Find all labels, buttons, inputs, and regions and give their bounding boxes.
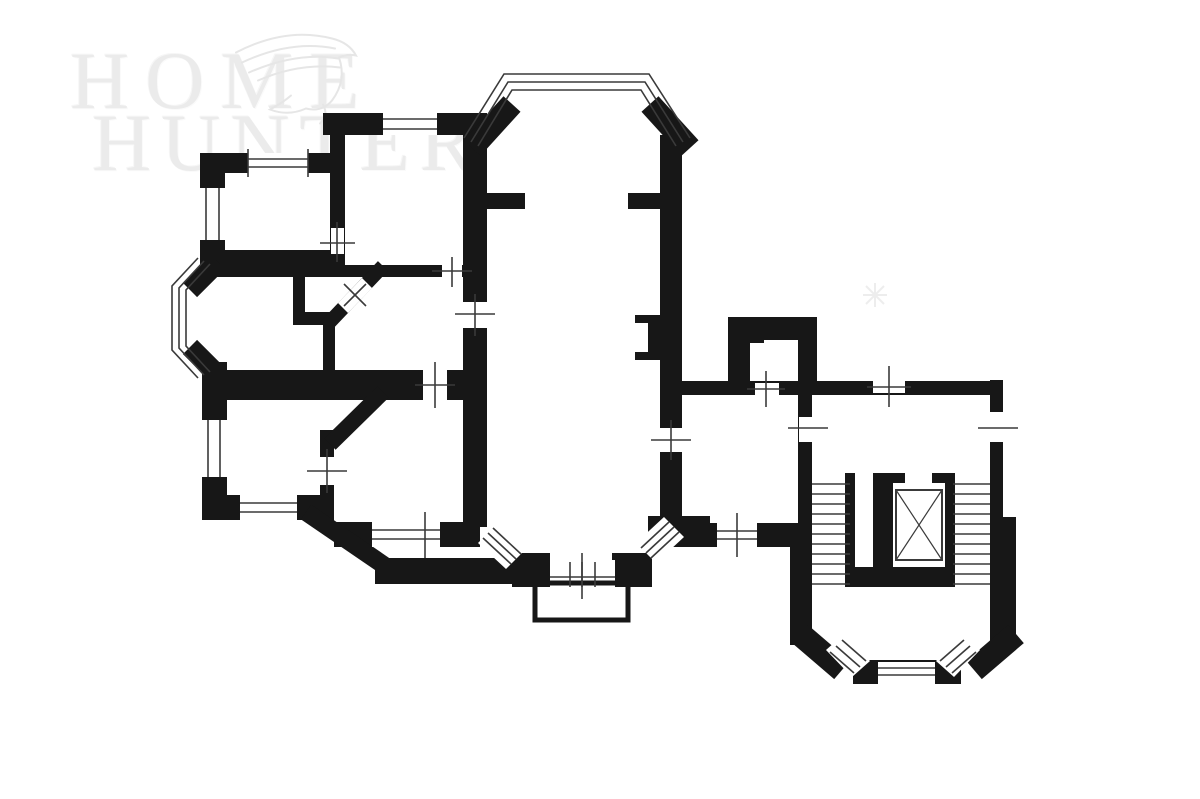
stair-right-wall-thick [990, 517, 1016, 647]
room-g-right-wall [798, 380, 812, 552]
hall-right-wall [660, 135, 682, 525]
stair-bay-corner-right [974, 634, 1016, 670]
wc-step [750, 333, 764, 343]
room-a-bottom-wall [200, 250, 345, 277]
window-a-top [248, 153, 308, 173]
window-a-left [200, 188, 225, 240]
top-bay-corner-right [650, 104, 690, 148]
window-stairhall-right [990, 412, 1003, 442]
corridor-top-wall [660, 381, 1003, 395]
hall-left-wall-foot [463, 495, 487, 527]
floorplan-image: HOME HUNTER [0, 0, 1200, 799]
floorplan-svg [0, 0, 1200, 799]
elevator-gap-2 [905, 473, 932, 483]
window-stairhall-left [799, 417, 813, 442]
hall-stub-left [487, 193, 525, 209]
left-bay-top-corner [190, 262, 218, 290]
stair-right-wall-thin [990, 380, 1003, 520]
stair-bay-window-bottom [878, 662, 935, 684]
window-e-bottom [240, 495, 297, 520]
window-f-bottom [372, 522, 440, 547]
window-b-top [383, 113, 437, 135]
hall-stub-right [628, 193, 662, 209]
top-bay-corner-left [472, 104, 512, 148]
elevator-shaft [855, 483, 873, 567]
fireplace-inner [635, 323, 648, 352]
window-e-left [202, 420, 227, 477]
elevator-gap-1 [855, 473, 873, 483]
